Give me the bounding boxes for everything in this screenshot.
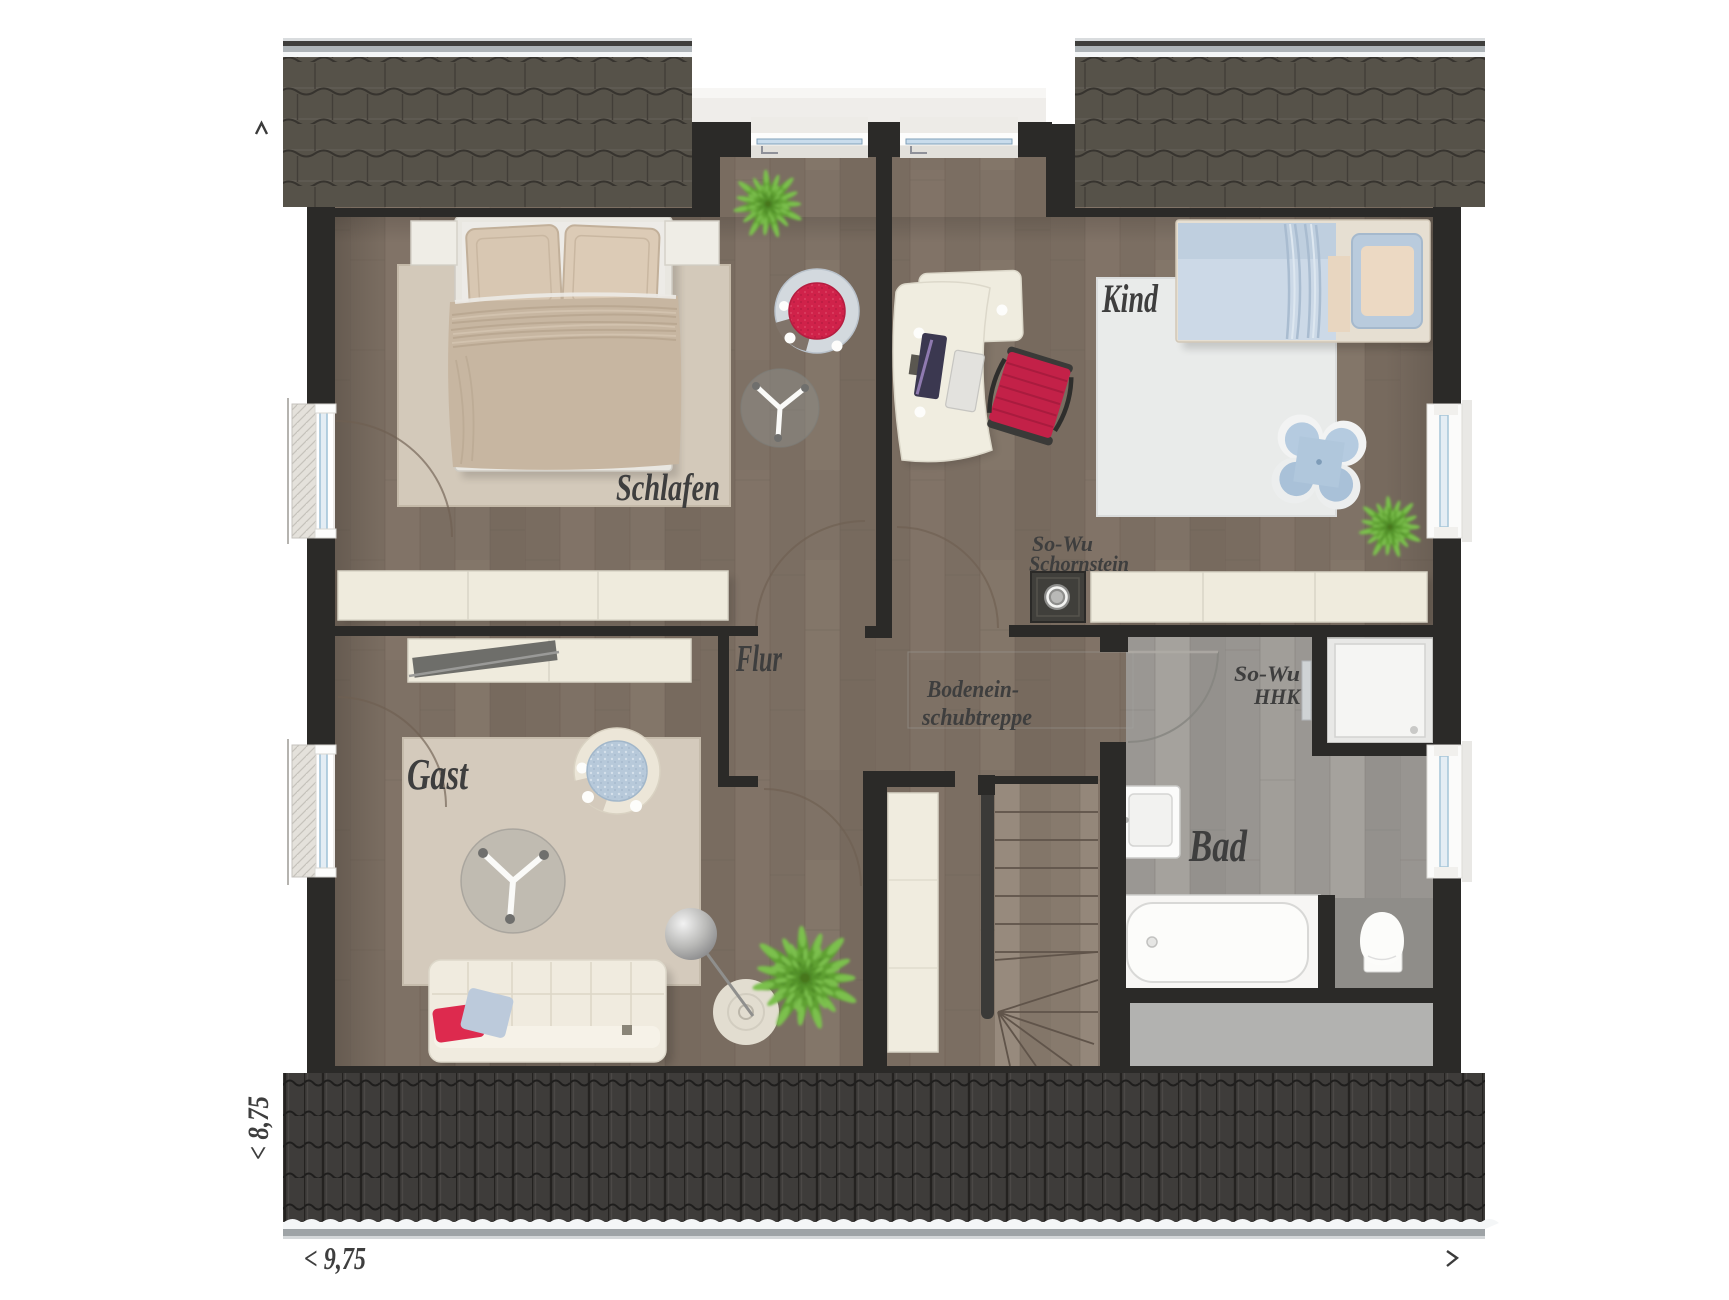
svg-text:So-Wu: So-Wu [1234,661,1300,686]
svg-text:Schlafen: Schlafen [616,467,720,509]
svg-text:HHK: HHK [1253,684,1301,709]
svg-text:Schornstein: Schornstein [1029,551,1129,576]
svg-text:< 9,75: < 9,75 [304,1240,366,1276]
svg-text:< 8,75: < 8,75 [242,1096,275,1160]
svg-text:Flur: Flur [735,638,782,680]
svg-text:Gast: Gast [407,750,469,799]
svg-text:Kind: Kind [1101,276,1158,321]
svg-text:schubtreppe: schubtreppe [921,705,1032,731]
svg-text:Bad: Bad [1188,820,1248,871]
svg-text:Bodenein-: Bodenein- [926,677,1019,703]
